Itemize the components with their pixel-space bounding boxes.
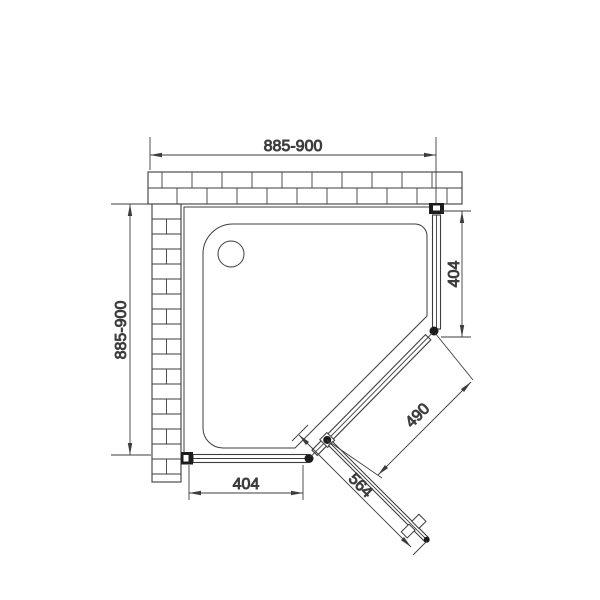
fixed-panel-bottom bbox=[181, 452, 314, 465]
dimension-label-door-width: 564 bbox=[345, 470, 376, 501]
fixed-panel-right bbox=[429, 203, 444, 336]
arrowhead bbox=[189, 491, 201, 495]
dimension-bottom-panel: 404 bbox=[189, 465, 303, 500]
technical-drawing-page: 885-900 885-900 404 404 490 bbox=[0, 0, 600, 600]
arrowhead bbox=[150, 153, 162, 157]
dimension-label-left-depth: 885-900 bbox=[113, 301, 130, 360]
arrowhead bbox=[291, 491, 303, 495]
arrowhead bbox=[460, 325, 464, 337]
door-closed-position bbox=[306, 329, 436, 461]
shower-enclosure-plan: 885-900 885-900 404 404 490 bbox=[0, 0, 600, 600]
dimension-label-bottom-panel: 404 bbox=[233, 476, 260, 493]
dimension-right-panel: 404 bbox=[441, 211, 471, 337]
dimension-door-diagonal: 490 bbox=[331, 333, 473, 478]
top-wall bbox=[148, 172, 462, 204]
dimension-label-right-panel: 404 bbox=[446, 261, 463, 288]
interior-wall-line bbox=[184, 207, 429, 452]
shower-tray bbox=[203, 224, 427, 448]
door-open-position bbox=[318, 431, 438, 551]
arrowhead bbox=[128, 443, 132, 455]
arrowhead bbox=[128, 204, 132, 216]
dimension-label-top-width: 885-900 bbox=[264, 138, 323, 155]
dimension-left-depth: 885-900 bbox=[111, 204, 151, 455]
arrowhead bbox=[424, 153, 436, 157]
drain-circle bbox=[218, 241, 244, 267]
dimension-label-door-diagonal: 490 bbox=[402, 400, 433, 431]
arrowhead bbox=[460, 211, 464, 223]
side-wall bbox=[152, 204, 181, 482]
